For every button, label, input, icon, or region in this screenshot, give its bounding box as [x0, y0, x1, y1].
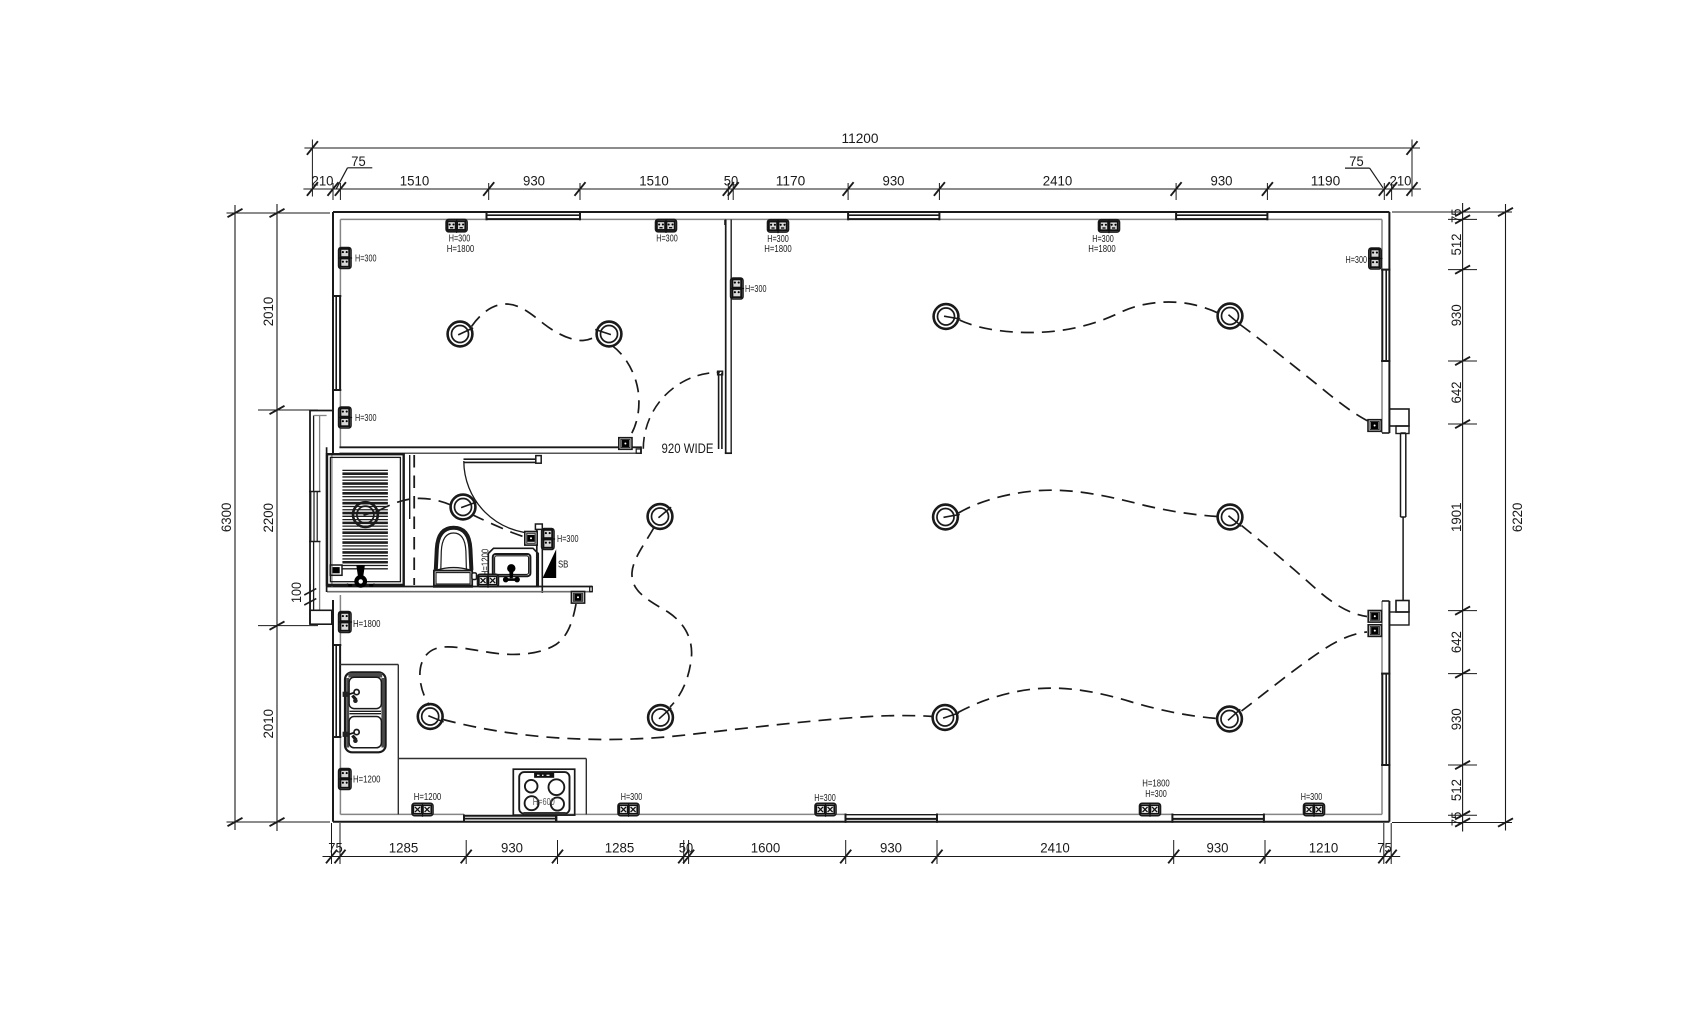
svg-text:H=1800: H=1800: [764, 244, 792, 255]
svg-text:H=1800: H=1800: [1088, 244, 1116, 255]
svg-text:50: 50: [679, 841, 693, 857]
svg-text:930: 930: [1449, 304, 1465, 326]
svg-text:642: 642: [1449, 631, 1465, 653]
svg-text:H=1800: H=1800: [1142, 779, 1170, 790]
svg-text:H=300: H=300: [814, 793, 836, 804]
svg-text:H=300: H=300: [557, 534, 579, 545]
svg-text:2410: 2410: [1040, 841, 1070, 857]
svg-text:1190: 1190: [1311, 174, 1341, 190]
svg-text:1210: 1210: [1309, 841, 1339, 857]
svg-text:H=300: H=300: [1145, 789, 1167, 800]
svg-text:930: 930: [1449, 708, 1465, 730]
svg-text:930: 930: [880, 841, 902, 857]
svg-text:SB: SB: [558, 560, 569, 571]
svg-text:930: 930: [883, 174, 905, 190]
svg-text:920 WIDE: 920 WIDE: [662, 440, 714, 456]
svg-text:2010: 2010: [261, 709, 277, 739]
svg-text:H=1200: H=1200: [353, 775, 381, 786]
svg-text:642: 642: [1449, 381, 1465, 403]
svg-text:H=300: H=300: [745, 284, 767, 295]
svg-text:H=300: H=300: [1301, 792, 1323, 803]
svg-text:75: 75: [1449, 812, 1465, 826]
svg-text:2410: 2410: [1043, 174, 1073, 190]
svg-text:210: 210: [1390, 174, 1412, 190]
svg-text:H=1800: H=1800: [447, 244, 475, 255]
svg-text:6300: 6300: [219, 503, 235, 533]
svg-text:1510: 1510: [639, 174, 669, 190]
svg-text:H=300: H=300: [656, 234, 678, 245]
svg-text:1901: 1901: [1449, 502, 1465, 532]
svg-text:H=1200: H=1200: [414, 792, 442, 803]
svg-text:512: 512: [1449, 233, 1465, 255]
svg-text:1285: 1285: [605, 841, 635, 857]
svg-text:930: 930: [501, 841, 523, 857]
svg-text:2200: 2200: [261, 503, 277, 533]
svg-text:75: 75: [328, 841, 342, 857]
svg-text:H=300: H=300: [1346, 255, 1368, 266]
svg-text:1285: 1285: [389, 841, 419, 857]
svg-text:50: 50: [724, 174, 738, 190]
svg-text:H=1200: H=1200: [481, 548, 492, 576]
svg-text:930: 930: [1211, 174, 1233, 190]
svg-text:930: 930: [1207, 841, 1229, 857]
svg-text:1510: 1510: [400, 174, 430, 190]
svg-text:H=300: H=300: [355, 253, 377, 264]
svg-text:H=300: H=300: [355, 413, 377, 424]
svg-text:75: 75: [1377, 841, 1391, 857]
svg-text:512: 512: [1449, 779, 1465, 801]
svg-text:75: 75: [1449, 208, 1465, 222]
svg-text:6220: 6220: [1510, 503, 1526, 533]
svg-text:210: 210: [312, 174, 334, 190]
svg-text:H=600: H=600: [533, 797, 555, 808]
svg-text:100: 100: [289, 582, 305, 603]
svg-text:H=300: H=300: [621, 792, 643, 803]
svg-text:11200: 11200: [842, 131, 879, 147]
svg-text:1170: 1170: [776, 174, 806, 190]
svg-text:2010: 2010: [261, 297, 277, 327]
svg-text:930: 930: [523, 174, 545, 190]
svg-text:H=1800: H=1800: [353, 619, 381, 630]
svg-text:1600: 1600: [751, 841, 781, 857]
